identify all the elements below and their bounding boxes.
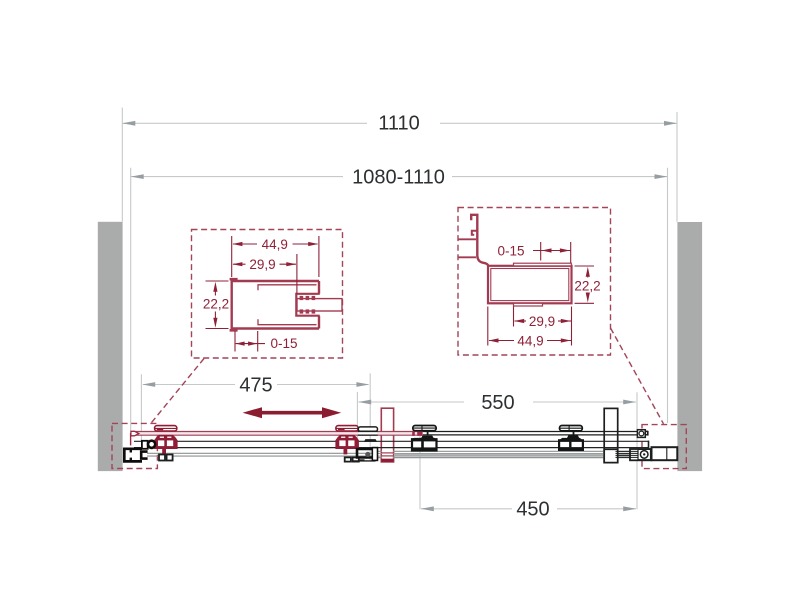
svg-text:22,2: 22,2 <box>203 296 229 311</box>
svg-text:1110: 1110 <box>378 113 420 135</box>
svg-text:44,9: 44,9 <box>262 237 288 252</box>
svg-text:0-15: 0-15 <box>497 243 524 258</box>
svg-text:1080-1110: 1080-1110 <box>352 167 445 189</box>
svg-text:22,2: 22,2 <box>574 278 600 293</box>
svg-text:44,9: 44,9 <box>517 333 543 348</box>
svg-text:0-15: 0-15 <box>270 336 297 351</box>
svg-text:550: 550 <box>481 392 514 414</box>
svg-text:29,9: 29,9 <box>529 314 555 329</box>
svg-text:29,9: 29,9 <box>249 257 275 272</box>
svg-text:475: 475 <box>239 374 272 396</box>
svg-text:450: 450 <box>516 499 549 521</box>
